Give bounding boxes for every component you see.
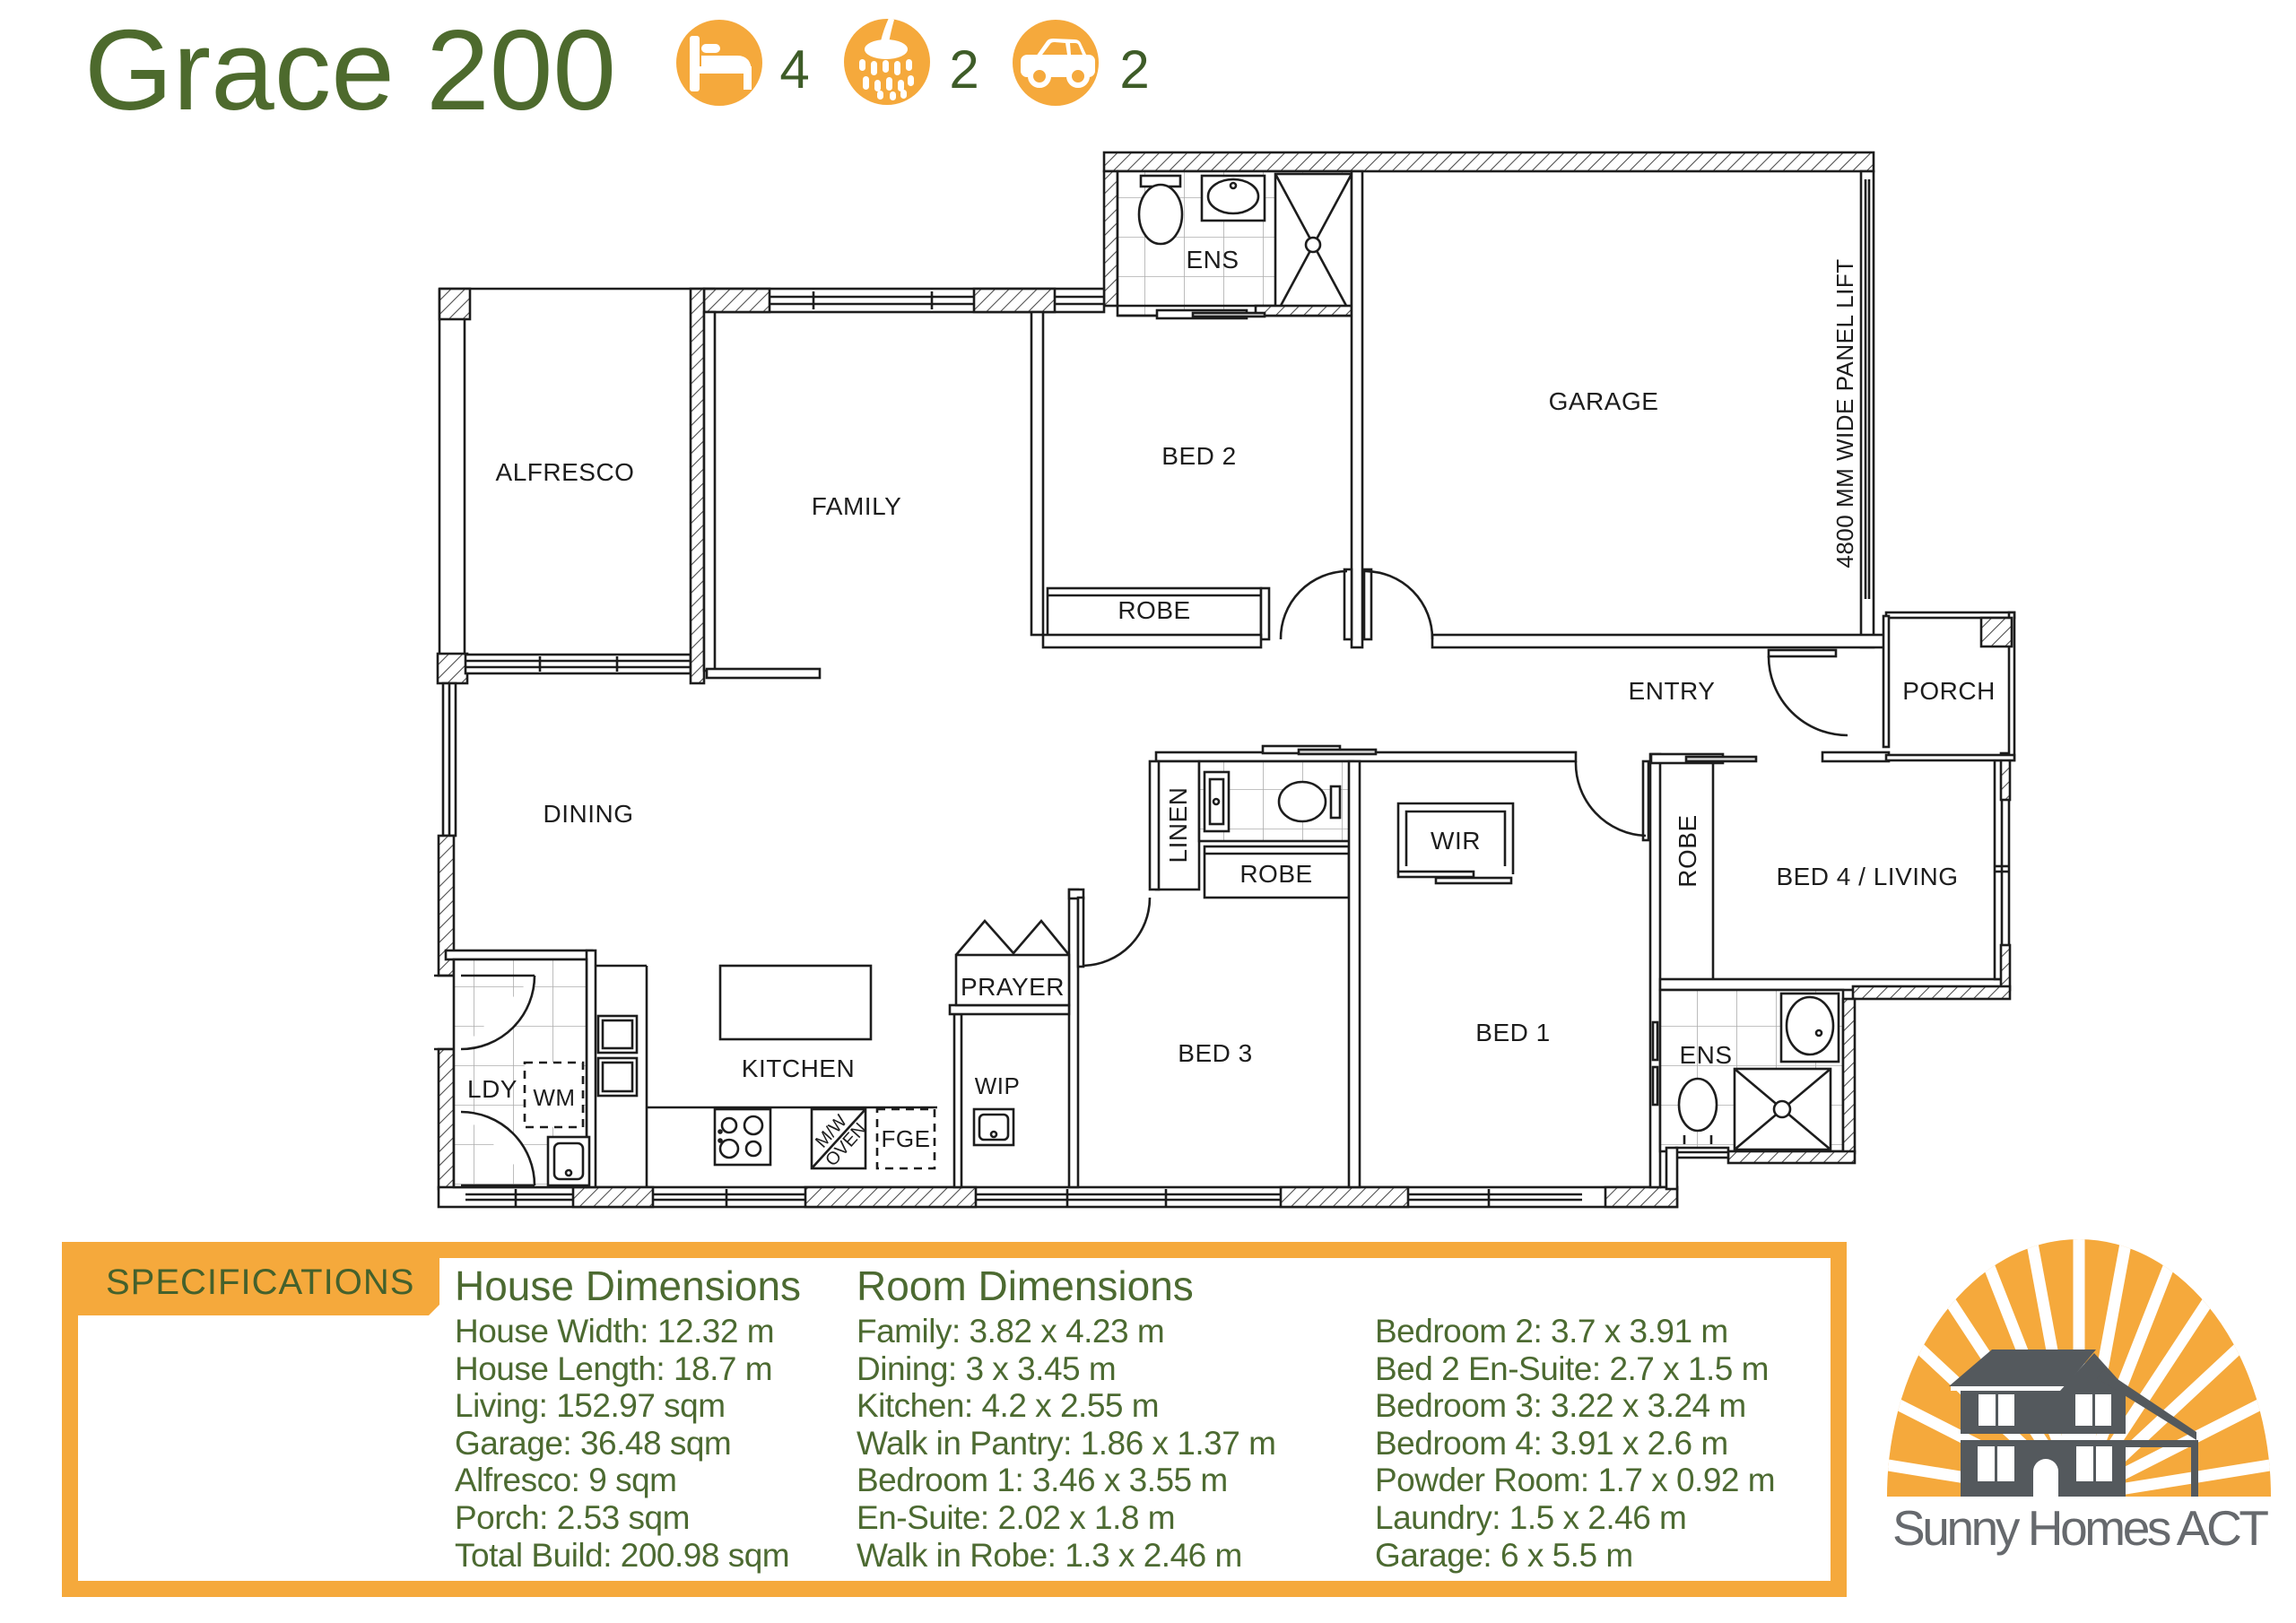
svg-text:FAMILY: FAMILY <box>812 492 902 520</box>
svg-text:4800 MM WIDE PANEL LIFT: 4800 MM WIDE PANEL LIFT <box>1831 258 1858 568</box>
svg-text:Grace 200: Grace 200 <box>84 6 616 134</box>
svg-text:Sunny Homes ACT: Sunny Homes ACT <box>1892 1500 2269 1556</box>
svg-text:GARAGE: GARAGE <box>1549 387 1659 415</box>
svg-text:ENS: ENS <box>1186 246 1239 273</box>
svg-text:Walk in Robe: 1.3 x 2.46 m: Walk in Robe: 1.3 x 2.46 m <box>857 1537 1242 1574</box>
svg-text:House Length: 18.7 m: House Length: 18.7 m <box>455 1350 772 1387</box>
svg-text:WIR: WIR <box>1431 827 1481 855</box>
svg-text:House Dimensions: House Dimensions <box>455 1263 801 1309</box>
svg-text:Bedroom 4: 3.91 x 2.6 m: Bedroom 4: 3.91 x 2.6 m <box>1375 1425 1728 1462</box>
svg-text:BED 4 / LIVING: BED 4 / LIVING <box>1776 863 1958 890</box>
svg-text:Room Dimensions: Room Dimensions <box>857 1263 1194 1309</box>
svg-text:PORCH: PORCH <box>1902 677 1996 705</box>
svg-text:WIP: WIP <box>975 1072 1021 1099</box>
svg-text:BED 2: BED 2 <box>1161 442 1236 470</box>
svg-text:DINING: DINING <box>544 800 634 828</box>
svg-text:Porch: 2.53 sqm: Porch: 2.53 sqm <box>455 1499 690 1536</box>
svg-text:Alfresco: 9 sqm: Alfresco: 9 sqm <box>455 1462 676 1498</box>
svg-text:ALFRESCO: ALFRESCO <box>496 458 635 486</box>
svg-text:En-Suite: 2.02 x 1.8 m: En-Suite: 2.02 x 1.8 m <box>857 1499 1175 1536</box>
svg-text:Bedroom 3: 3.22 x 3.24 m: Bedroom 3: 3.22 x 3.24 m <box>1375 1387 1746 1424</box>
svg-text:BED 3: BED 3 <box>1178 1039 1252 1067</box>
svg-text:ENS: ENS <box>1679 1041 1732 1069</box>
svg-text:2: 2 <box>949 39 978 100</box>
svg-text:LDY: LDY <box>467 1075 517 1103</box>
svg-text:Total Build: 200.98 sqm: Total Build: 200.98 sqm <box>455 1537 789 1574</box>
svg-text:Bedroom 1: 3.46 x 3.55 m: Bedroom 1: 3.46 x 3.55 m <box>857 1462 1228 1498</box>
svg-text:Garage: 6 x 5.5 m: Garage: 6 x 5.5 m <box>1375 1537 1633 1574</box>
svg-text:Walk in Pantry: 1.86 x 1.37 m: Walk in Pantry: 1.86 x 1.37 m <box>857 1425 1275 1462</box>
svg-text:4: 4 <box>779 39 809 100</box>
svg-text:ROBE: ROBE <box>1118 596 1190 624</box>
svg-text:Dining: 3 x 3.45 m: Dining: 3 x 3.45 m <box>857 1350 1116 1387</box>
svg-text:WM: WM <box>533 1084 575 1111</box>
svg-text:ROBE: ROBE <box>1674 814 1701 887</box>
svg-text:FGE: FGE <box>882 1125 931 1152</box>
svg-text:Family: 3.82 x 4.23 m: Family: 3.82 x 4.23 m <box>857 1313 1164 1350</box>
svg-text:ENTRY: ENTRY <box>1629 677 1716 705</box>
svg-text:BED 1: BED 1 <box>1475 1019 1550 1046</box>
svg-text:Bed 2 En-Suite: 2.7 x 1.5 m: Bed 2 En-Suite: 2.7 x 1.5 m <box>1375 1350 1769 1387</box>
svg-text:Bedroom 2: 3.7 x 3.91 m: Bedroom 2: 3.7 x 3.91 m <box>1375 1313 1728 1350</box>
svg-text:Living: 152.97 sqm: Living: 152.97 sqm <box>455 1387 726 1424</box>
svg-text:ROBE: ROBE <box>1239 860 1312 888</box>
svg-text:PRAYER: PRAYER <box>961 973 1065 1001</box>
svg-text:House Width: 12.32 m: House Width: 12.32 m <box>455 1313 774 1350</box>
svg-text:Kitchen: 4.2 x 2.55 m: Kitchen: 4.2 x 2.55 m <box>857 1387 1159 1424</box>
svg-text:Laundry: 1.5 x 2.46 m: Laundry: 1.5 x 2.46 m <box>1375 1499 1686 1536</box>
svg-text:Garage: 36.48 sqm: Garage: 36.48 sqm <box>455 1425 731 1462</box>
svg-text:LINEN: LINEN <box>1164 787 1192 864</box>
svg-text:KITCHEN: KITCHEN <box>742 1055 855 1082</box>
svg-text:Powder Room: 1.7 x 0.92 m: Powder Room: 1.7 x 0.92 m <box>1375 1462 1775 1498</box>
svg-text:2: 2 <box>1119 39 1149 100</box>
svg-text:SPECIFICATIONS: SPECIFICATIONS <box>106 1263 414 1302</box>
